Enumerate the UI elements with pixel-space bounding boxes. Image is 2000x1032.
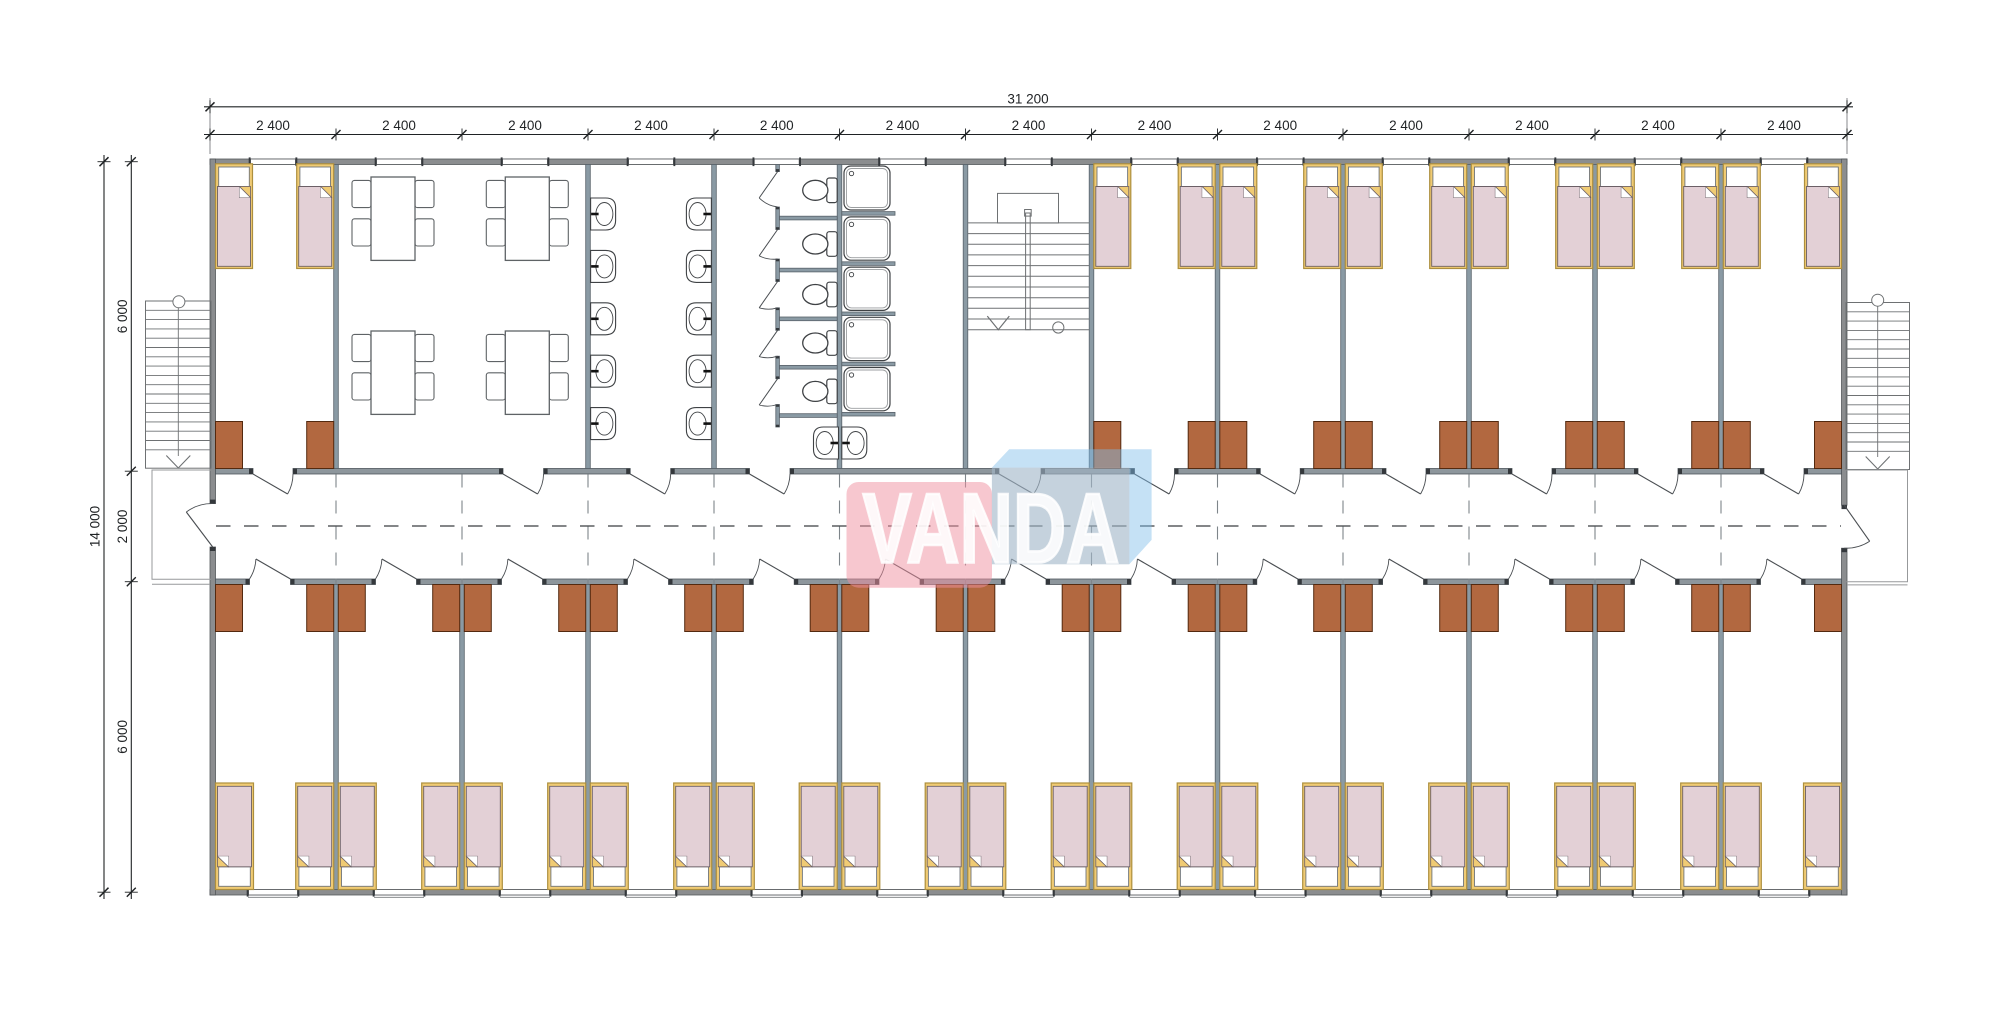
svg-text:6 000: 6 000 (115, 300, 130, 334)
svg-text:2 400: 2 400 (382, 118, 416, 133)
svg-text:2 400: 2 400 (1138, 118, 1172, 133)
svg-text:31 200: 31 200 (1007, 91, 1048, 106)
svg-text:2 400: 2 400 (1641, 118, 1675, 133)
svg-text:2 400: 2 400 (256, 118, 290, 133)
svg-text:2 400: 2 400 (1389, 118, 1423, 133)
svg-text:VANDA: VANDA (863, 473, 1120, 584)
svg-text:2 000: 2 000 (115, 510, 130, 544)
svg-text:2 400: 2 400 (886, 118, 920, 133)
svg-text:14 000: 14 000 (88, 506, 103, 547)
svg-text:2 400: 2 400 (1767, 118, 1801, 133)
svg-text:2 400: 2 400 (1012, 118, 1046, 133)
svg-text:2 400: 2 400 (760, 118, 794, 133)
svg-text:2 400: 2 400 (1263, 118, 1297, 133)
svg-text:6 000: 6 000 (115, 720, 130, 754)
svg-text:2 400: 2 400 (508, 118, 542, 133)
svg-text:2 400: 2 400 (1515, 118, 1549, 133)
svg-text:2 400: 2 400 (634, 118, 668, 133)
